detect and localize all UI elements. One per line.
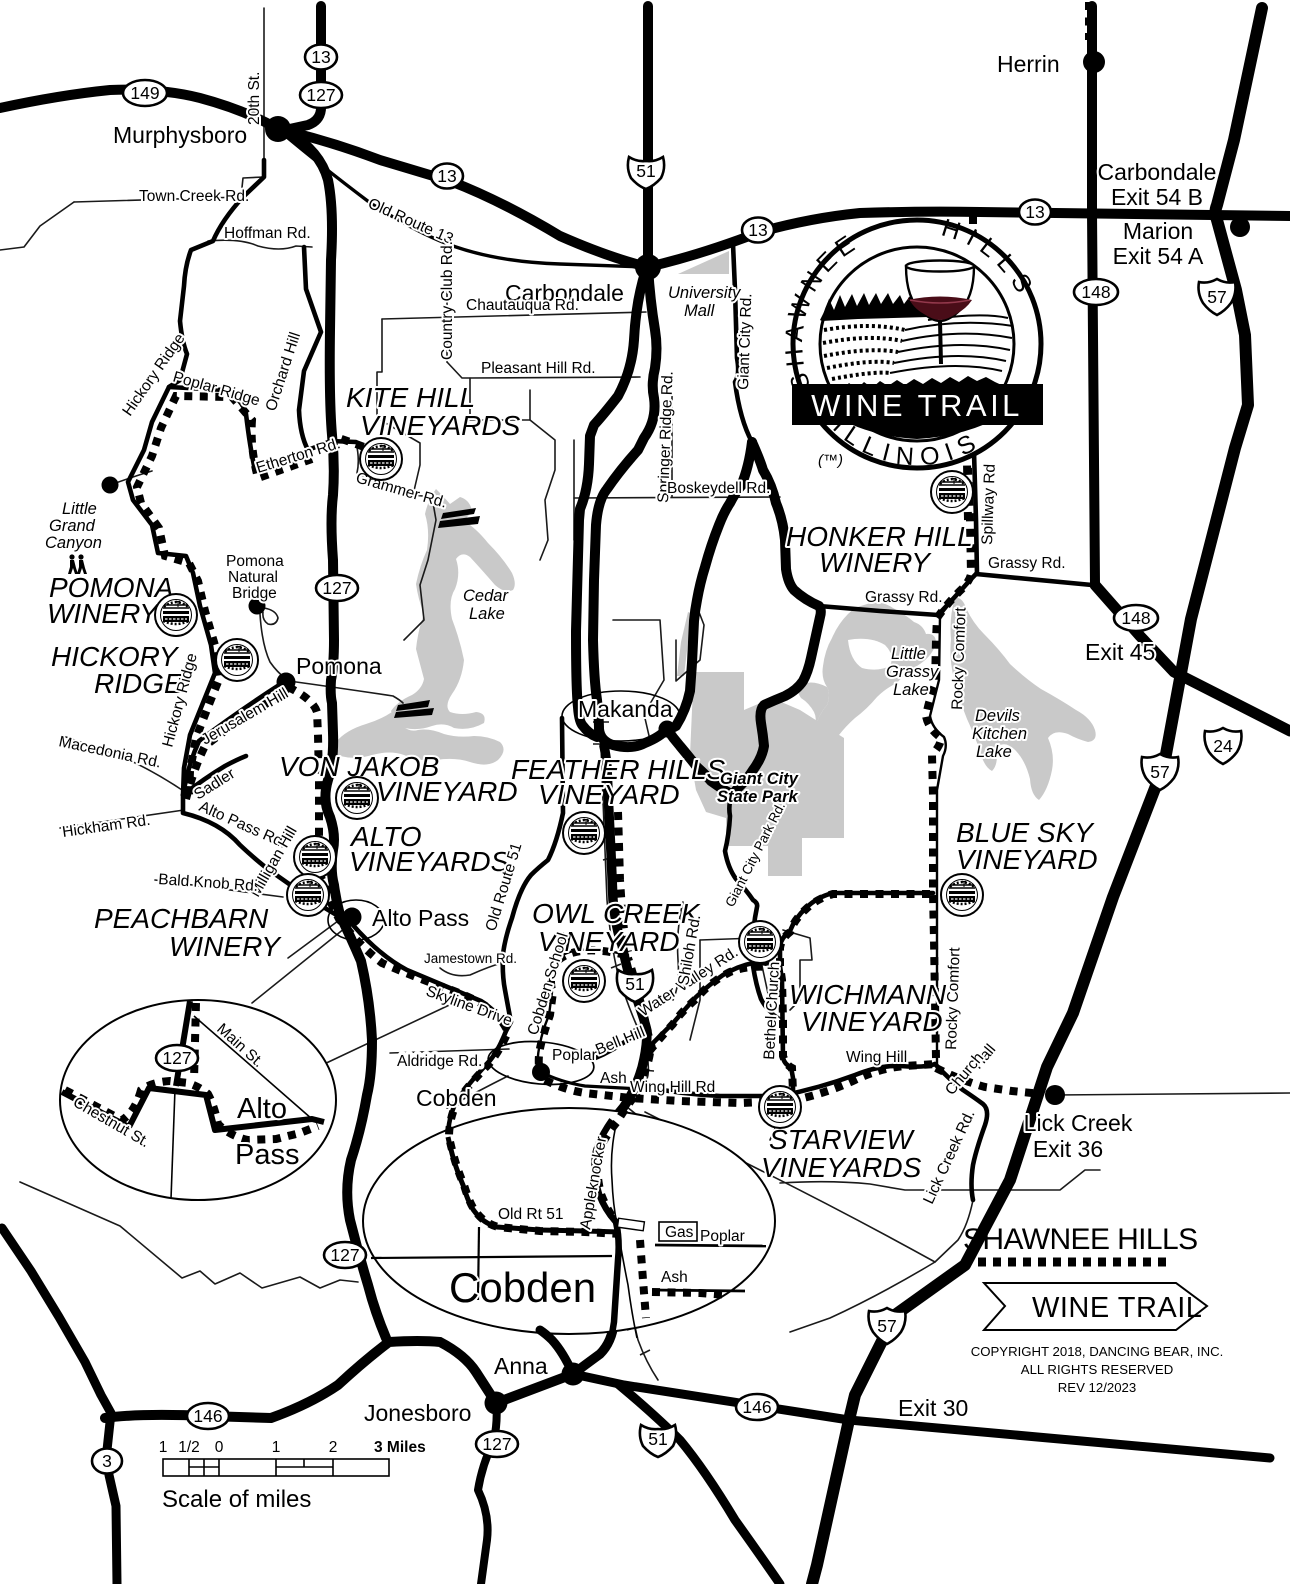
svg-text:Giant City: Giant City <box>720 770 799 788</box>
svg-text:Chautauqua Rd.: Chautauqua Rd. <box>466 297 579 314</box>
svg-text:Little: Little <box>62 500 97 518</box>
svg-text:Exit 54 A: Exit 54 A <box>1113 243 1204 269</box>
svg-text:Cobden: Cobden <box>416 1085 497 1111</box>
svg-text:WINERY: WINERY <box>819 547 932 578</box>
svg-text:Bridge: Bridge <box>232 585 277 602</box>
svg-text:57: 57 <box>1150 762 1169 782</box>
svg-text:13: 13 <box>1025 202 1044 222</box>
svg-text:Alto: Alto <box>237 1093 287 1125</box>
svg-text:Scale of miles: Scale of miles <box>162 1486 311 1513</box>
svg-text:Natural: Natural <box>228 569 278 586</box>
svg-text:WINERY: WINERY <box>169 931 282 962</box>
svg-text:146: 146 <box>193 1406 222 1426</box>
svg-text:Cobden: Cobden <box>449 1264 596 1311</box>
svg-text:13: 13 <box>748 220 767 240</box>
svg-text:Grand: Grand <box>49 517 96 535</box>
svg-text:Gas: Gas <box>665 1224 694 1241</box>
svg-text:Herrin: Herrin <box>997 51 1060 77</box>
svg-text:Ash: Ash <box>600 1070 627 1087</box>
svg-text:Exit 54 B: Exit 54 B <box>1111 184 1203 210</box>
svg-text:RIDGE: RIDGE <box>94 668 183 699</box>
svg-text:Lake: Lake <box>976 743 1012 761</box>
svg-text:146: 146 <box>742 1397 771 1417</box>
svg-text:Alto Pass: Alto Pass <box>372 905 469 931</box>
svg-text:24: 24 <box>1213 736 1233 756</box>
svg-text:51: 51 <box>625 974 644 994</box>
svg-text:148: 148 <box>1081 282 1110 302</box>
svg-text:Hoffman Rd.: Hoffman Rd. <box>224 225 311 242</box>
svg-text:51: 51 <box>648 1429 667 1449</box>
svg-text:University: University <box>668 284 742 302</box>
svg-text:Wing Hill Rd: Wing Hill Rd <box>630 1079 715 1096</box>
svg-text:2: 2 <box>329 1439 338 1456</box>
svg-text:Jamestown Rd.: Jamestown Rd. <box>424 951 517 966</box>
svg-text:57: 57 <box>1207 287 1226 307</box>
svg-text:Anna: Anna <box>494 1353 548 1379</box>
svg-text:Grassy Rd.: Grassy Rd. <box>865 589 943 606</box>
svg-text:Grassy Rd.: Grassy Rd. <box>988 555 1066 572</box>
svg-text:STARVIEW: STARVIEW <box>769 1124 915 1155</box>
svg-text:Jonesboro: Jonesboro <box>364 1400 471 1426</box>
svg-text:51: 51 <box>636 161 655 181</box>
svg-text:127: 127 <box>162 1048 191 1068</box>
svg-text:Murphysboro: Murphysboro <box>113 122 247 148</box>
svg-text:1: 1 <box>159 1439 168 1456</box>
svg-text:127: 127 <box>330 1245 359 1265</box>
svg-text:VINEYARD: VINEYARD <box>801 1006 943 1037</box>
svg-text:Carbondale: Carbondale <box>1098 159 1217 185</box>
svg-text:VINEYARDS: VINEYARDS <box>761 1152 922 1183</box>
svg-text:0: 0 <box>215 1439 224 1456</box>
svg-text:127: 127 <box>322 578 351 598</box>
svg-text:Pomona: Pomona <box>296 653 382 679</box>
svg-text:Lake: Lake <box>469 605 505 623</box>
svg-text:Devils: Devils <box>975 707 1020 725</box>
svg-text:OWL CREEK: OWL CREEK <box>532 898 701 929</box>
svg-text:Mall: Mall <box>684 302 716 320</box>
svg-text:Exit 45: Exit 45 <box>1085 639 1155 665</box>
svg-text:3: 3 <box>102 1451 112 1471</box>
svg-text:13: 13 <box>311 47 330 67</box>
svg-text:REV 12/2023: REV 12/2023 <box>1058 1380 1136 1395</box>
svg-text:3 Miles: 3 Miles <box>374 1439 426 1456</box>
svg-text:127: 127 <box>482 1434 511 1454</box>
svg-text:Lake: Lake <box>893 681 929 699</box>
svg-text:Kitchen: Kitchen <box>972 725 1027 743</box>
svg-text:127: 127 <box>306 85 335 105</box>
svg-text:VINEYARD: VINEYARD <box>376 776 518 807</box>
svg-text:VINEYARD: VINEYARD <box>956 844 1098 875</box>
svg-text:13: 13 <box>437 166 456 186</box>
svg-text:WINERY: WINERY <box>47 598 160 629</box>
svg-text:Makanda: Makanda <box>578 696 673 722</box>
svg-text:Lick Creek: Lick Creek <box>1024 1110 1133 1136</box>
svg-text:WINE TRAIL: WINE TRAIL <box>1032 1292 1202 1324</box>
svg-text:PEACHBARN: PEACHBARN <box>94 903 269 934</box>
svg-text:Poplar: Poplar <box>552 1047 597 1064</box>
svg-text:Aldridge Rd.: Aldridge Rd. <box>397 1053 482 1070</box>
svg-text:Canyon: Canyon <box>45 534 102 552</box>
svg-text:Rocky Comfort: Rocky Comfort <box>943 946 964 1050</box>
svg-text:KITE HILL: KITE HILL <box>346 382 475 413</box>
svg-text:ALL RIGHTS RESERVED: ALL RIGHTS RESERVED <box>1021 1362 1173 1377</box>
svg-text:Giant City Rd.: Giant City Rd. <box>735 293 755 390</box>
svg-text:VINEYARDS: VINEYARDS <box>360 410 521 441</box>
svg-text:148: 148 <box>1121 608 1150 628</box>
svg-text:Wing Hill: Wing Hill <box>846 1049 907 1066</box>
svg-text:Spillway Rd: Spillway Rd <box>979 464 999 546</box>
svg-text:149: 149 <box>130 83 159 103</box>
svg-text:Rocky Comfort: Rocky Comfort <box>949 606 970 710</box>
svg-text:Little: Little <box>891 645 926 663</box>
svg-text:Boskeydell Rd.: Boskeydell Rd. <box>667 480 770 497</box>
svg-text:1: 1 <box>272 1439 281 1456</box>
svg-text:Marion: Marion <box>1123 218 1193 244</box>
svg-text:Country Club Rd.: Country Club Rd. <box>439 241 456 360</box>
svg-text:Poplar: Poplar <box>700 1228 745 1245</box>
svg-text:20th St.: 20th St. <box>246 72 263 125</box>
svg-text:Pass: Pass <box>235 1139 299 1171</box>
svg-text:SHAWNEE HILLS: SHAWNEE HILLS <box>963 1223 1198 1256</box>
svg-text:Grassy: Grassy <box>886 663 940 681</box>
svg-text:1/2: 1/2 <box>178 1439 200 1456</box>
svg-text:VINEYARD: VINEYARD <box>538 779 680 810</box>
svg-text:Pleasant Hill Rd.: Pleasant Hill Rd. <box>481 360 596 377</box>
svg-text:Old Rt 51: Old Rt 51 <box>498 1206 563 1223</box>
svg-text:Cedar: Cedar <box>463 587 509 605</box>
svg-text:Pomona: Pomona <box>226 553 284 570</box>
svg-text:Town Creek Rd.: Town Creek Rd. <box>139 188 249 205</box>
svg-text:State Park: State Park <box>717 788 799 806</box>
svg-text:57: 57 <box>877 1316 896 1336</box>
svg-text:(™): (™) <box>818 452 843 469</box>
svg-text:COPYRIGHT 2018, DANCING BEAR,: COPYRIGHT 2018, DANCING BEAR, INC. <box>971 1344 1224 1359</box>
svg-text:VINEYARDS: VINEYARDS <box>349 846 510 877</box>
svg-text:Ash: Ash <box>661 1269 688 1286</box>
svg-text:Exit 36: Exit 36 <box>1033 1136 1103 1162</box>
svg-text:Exit 30: Exit 30 <box>898 1395 968 1421</box>
